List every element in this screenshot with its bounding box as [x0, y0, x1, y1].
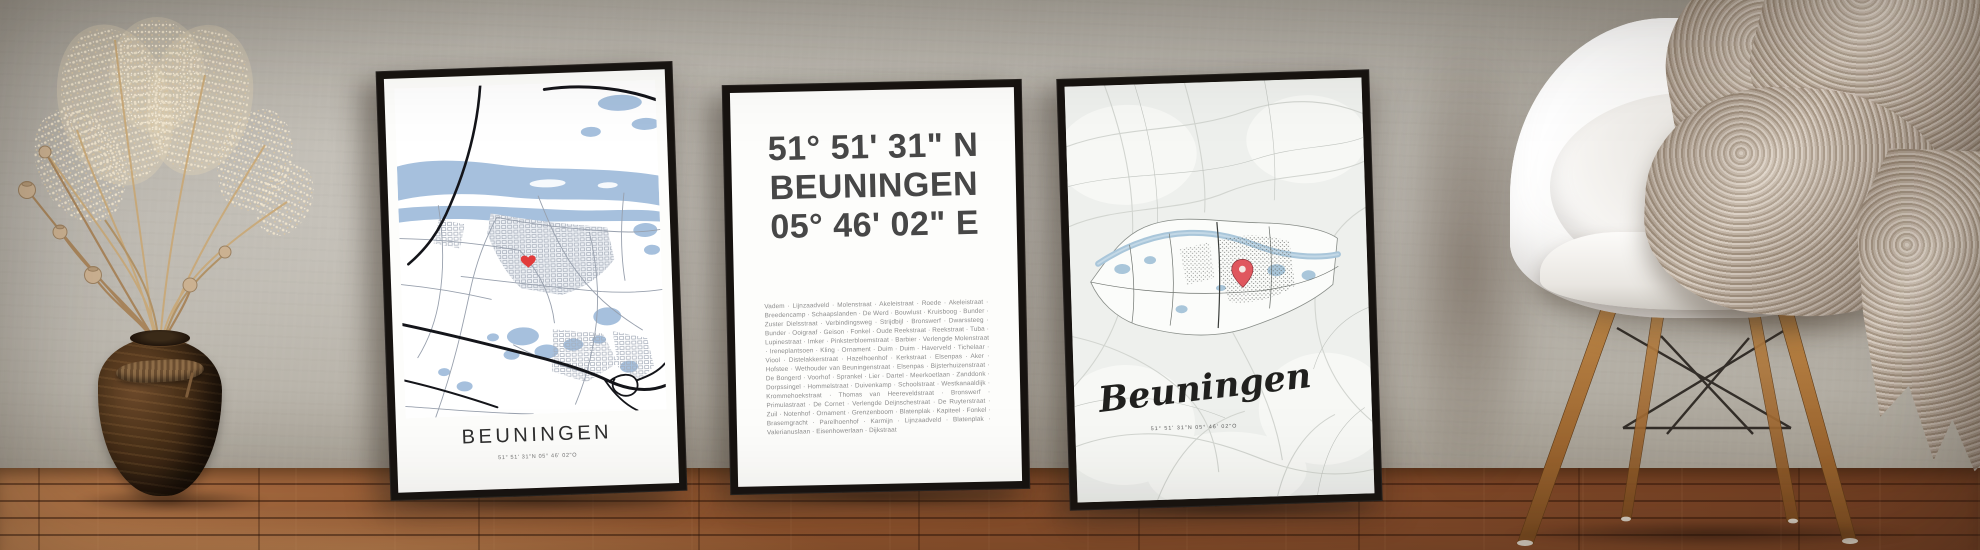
poster-map-left: BEUNINGEN 51° 51' 31"N 05° 46' 02"O — [376, 61, 688, 501]
dried-flower-bouquet — [0, 0, 355, 370]
vase-shadow — [72, 488, 272, 514]
poster-map-right: Beuningen 51° 51' 31"N 05° 46' 02"O — [1056, 69, 1382, 511]
room-scene: BEUNINGEN 51° 51' 31"N 05° 46' 02"O 51° … — [0, 0, 1980, 550]
flower-plumes — [17, 11, 325, 245]
dowel-legs — [1517, 292, 1857, 544]
chair-with-blanket — [1455, 0, 1980, 550]
left-poster-title: BEUNINGEN — [396, 419, 678, 452]
left-poster-coordinates: 51° 51' 31"N 05° 46' 02"O — [397, 449, 678, 465]
longitude-line: 05° 46' 02" E — [732, 203, 1017, 248]
municipality-map-graphic — [1065, 77, 1375, 502]
chair-floor-shadow — [1495, 520, 1925, 548]
street-map-graphic — [394, 80, 666, 419]
poster-coordinates-middle: 51° 51' 31" N BEUNINGEN 05° 46' 02" E Va… — [722, 79, 1031, 495]
vase-rim — [130, 330, 190, 346]
latitude-line: 51° 51' 31" N — [731, 125, 1016, 170]
street-names-block: Vadem · Lijnzaadveld · Molenstraat · Ake… — [764, 298, 991, 438]
coordinates-heading: 51° 51' 31" N BEUNINGEN 05° 46' 02" E — [731, 125, 1017, 248]
city-line: BEUNINGEN — [732, 164, 1017, 209]
